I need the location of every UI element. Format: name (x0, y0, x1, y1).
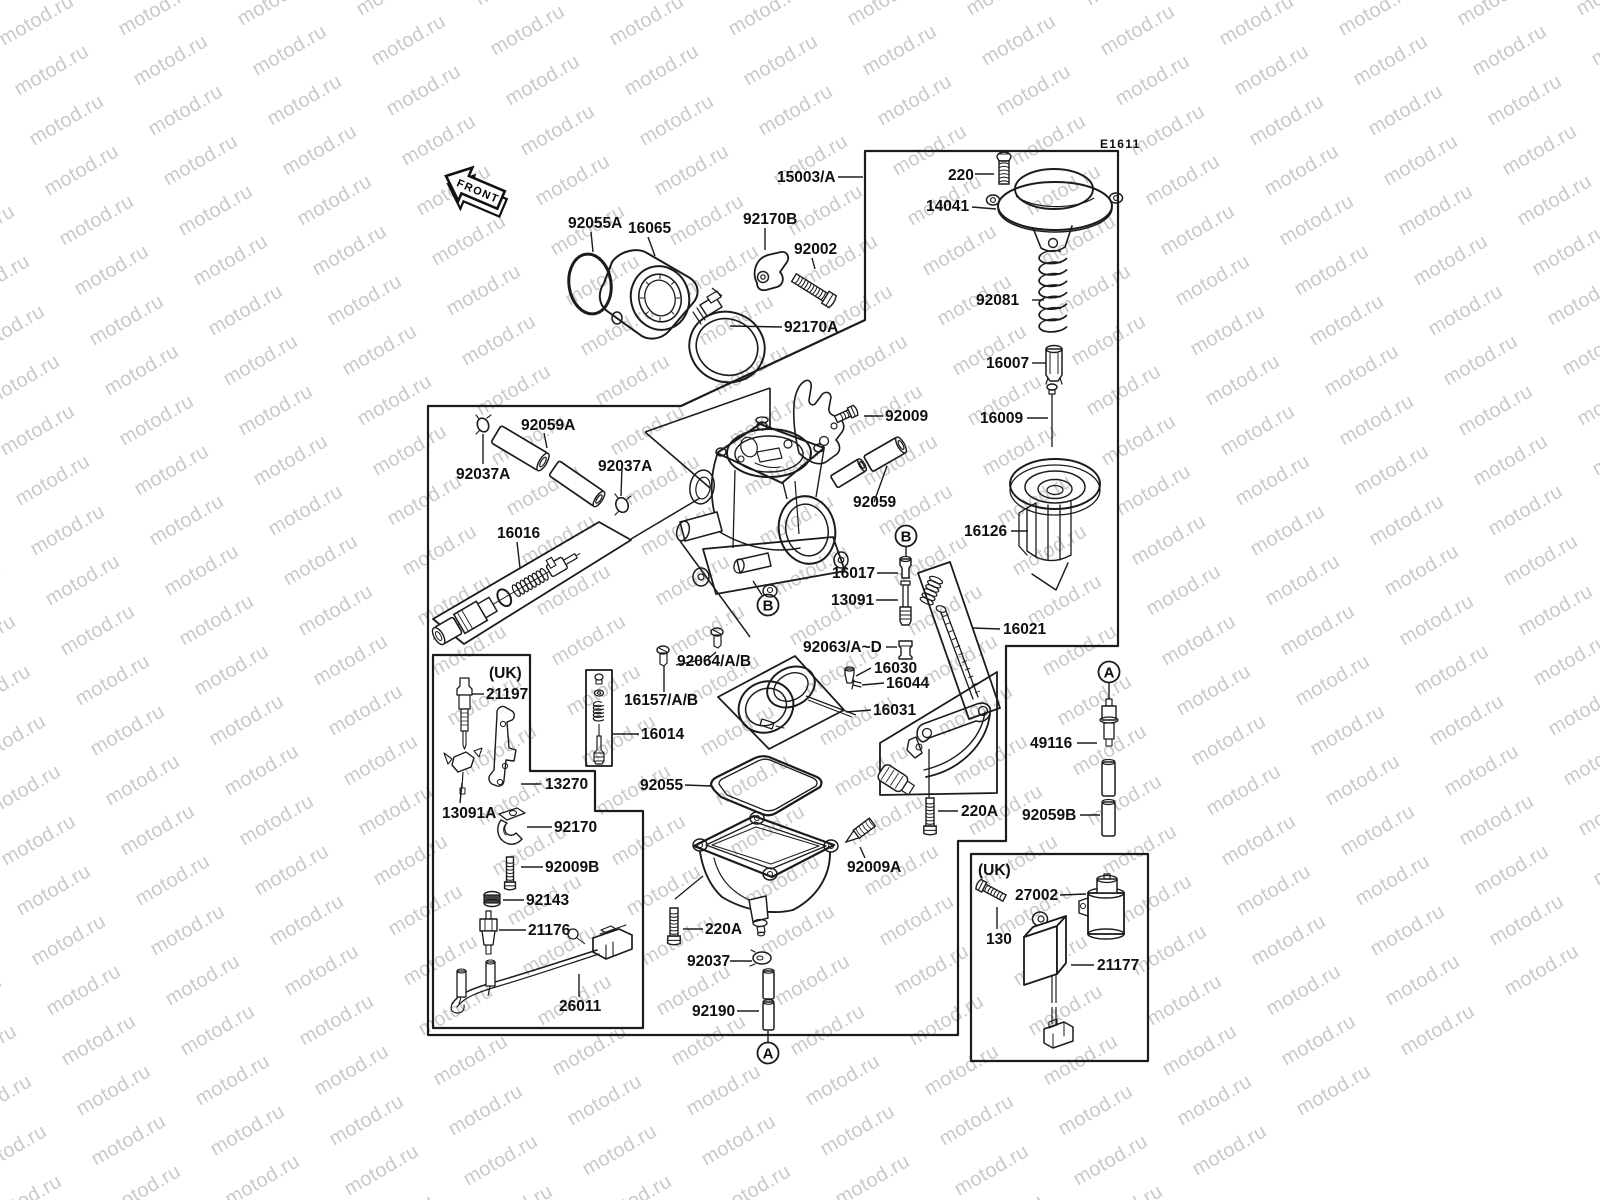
svg-text:220: 220 (948, 167, 974, 184)
svg-text:(UK): (UK) (978, 862, 1011, 879)
svg-text:27002: 27002 (1015, 887, 1058, 904)
svg-text:49116: 49116 (1030, 735, 1073, 752)
svg-text:A: A (763, 1046, 774, 1063)
svg-text:92059B: 92059B (1022, 807, 1076, 824)
svg-text:92009: 92009 (885, 408, 928, 425)
svg-text:16021: 16021 (1003, 621, 1046, 638)
svg-text:16065: 16065 (628, 220, 671, 237)
svg-text:16031: 16031 (873, 702, 916, 719)
svg-text:220A: 220A (705, 921, 742, 938)
svg-text:14041: 14041 (926, 198, 969, 215)
svg-text:220A: 220A (961, 803, 998, 820)
svg-text:26011: 26011 (559, 998, 602, 1015)
svg-text:21197: 21197 (486, 686, 528, 703)
svg-text:13270: 13270 (545, 776, 588, 793)
svg-text:E1611: E1611 (1100, 137, 1141, 151)
svg-text:130: 130 (986, 931, 1012, 948)
svg-text:92170A: 92170A (784, 319, 838, 336)
svg-text:16007: 16007 (986, 355, 1029, 372)
svg-text:16016: 16016 (497, 525, 540, 542)
svg-text:92143: 92143 (526, 892, 569, 909)
svg-text:92055: 92055 (640, 777, 683, 794)
svg-text:B: B (901, 529, 912, 546)
svg-text:92063/A~D: 92063/A~D (803, 639, 882, 656)
svg-text:92037: 92037 (687, 953, 730, 970)
svg-text:15003/A: 15003/A (777, 169, 836, 186)
svg-text:92170B: 92170B (743, 211, 797, 228)
svg-text:92055A: 92055A (568, 215, 622, 232)
svg-text:92170: 92170 (554, 819, 597, 836)
svg-text:13091A: 13091A (442, 805, 496, 822)
svg-text:A: A (1104, 665, 1115, 682)
svg-text:92009A: 92009A (847, 859, 901, 876)
svg-text:16157/A/B: 16157/A/B (624, 692, 698, 709)
svg-text:92002: 92002 (794, 241, 837, 258)
svg-text:92037A: 92037A (456, 466, 510, 483)
svg-text:13091: 13091 (831, 592, 874, 609)
svg-text:92064/A/B: 92064/A/B (677, 653, 751, 670)
svg-text:(UK): (UK) (489, 665, 522, 682)
svg-text:92009B: 92009B (545, 859, 599, 876)
svg-text:92190: 92190 (692, 1003, 735, 1020)
svg-text:92059A: 92059A (521, 417, 575, 434)
svg-text:92037A: 92037A (598, 458, 652, 475)
svg-text:21176: 21176 (528, 922, 571, 939)
svg-text:16009: 16009 (980, 410, 1023, 427)
svg-text:16044: 16044 (886, 675, 929, 692)
svg-text:92081: 92081 (976, 292, 1019, 309)
svg-text:92059: 92059 (853, 494, 896, 511)
svg-text:B: B (763, 598, 774, 615)
svg-text:16126: 16126 (964, 523, 1007, 540)
svg-text:21177: 21177 (1097, 957, 1139, 974)
svg-text:16014: 16014 (641, 726, 684, 743)
